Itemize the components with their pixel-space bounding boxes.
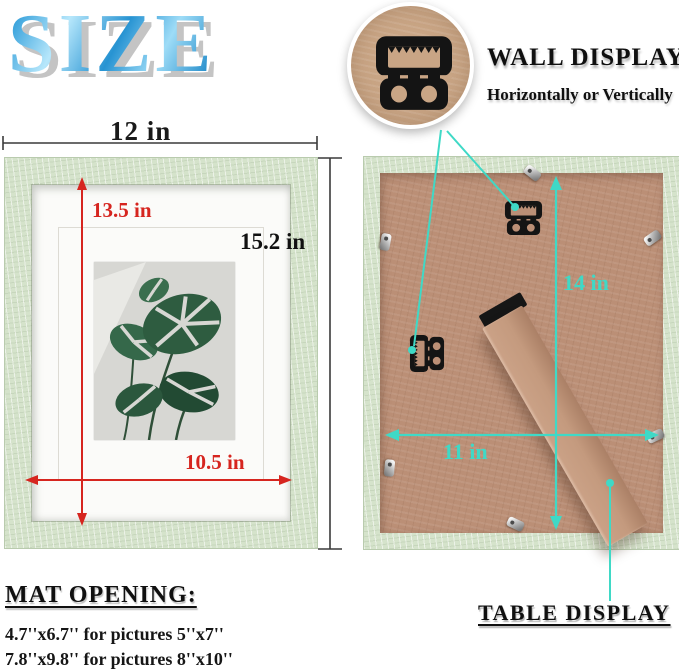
monstera-plant-illustration	[94, 262, 235, 440]
mat-opening-line-2: 7.8''x9.8'' for pictures 8''x10''	[5, 649, 233, 670]
height-measure-line	[318, 158, 342, 549]
outer-width-label: 12 in	[110, 116, 171, 147]
metal-clip-icon	[384, 459, 395, 477]
frame-front-view	[5, 158, 317, 548]
hanger-callout-circle	[347, 2, 474, 129]
sawtooth-hanger-icon	[408, 333, 445, 374]
wall-display-heading: WALL DISPLAY	[487, 44, 679, 72]
mat-width-label: 10.5 in	[185, 450, 245, 475]
mat-opening-line-1: 4.7''x6.7'' for pictures 5''x7''	[5, 624, 224, 645]
page-title-text: SIZE	[8, 2, 215, 86]
page-title: SIZE SIZE	[8, 2, 228, 106]
mat-opening-heading: MAT OPENING:	[5, 582, 197, 609]
mat-height-label: 13.5 in	[92, 198, 152, 223]
outer-height-label: 15.2 in	[240, 229, 305, 255]
sawtooth-hanger-icon	[372, 32, 456, 112]
sawtooth-hanger-icon	[503, 199, 544, 236]
board-height-label: 14 in	[563, 270, 609, 296]
board-width-label: 11 in	[443, 439, 488, 465]
size-infographic: SIZE SIZE WALL DISPLAY Horizontally or V…	[0, 0, 679, 671]
monstera-photo	[94, 262, 235, 440]
table-display-heading: TABLE DISPLAY	[478, 600, 671, 626]
wall-display-subtitle: Horizontally or Vertically	[487, 85, 673, 105]
